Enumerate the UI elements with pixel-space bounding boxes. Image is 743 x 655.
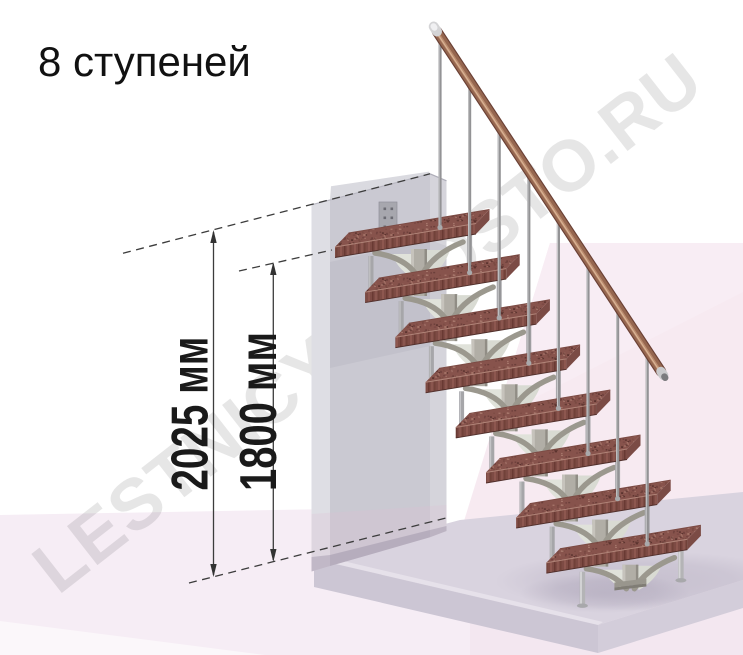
- svg-text:2025 мм: 2025 мм: [162, 337, 220, 491]
- svg-text:1800 мм: 1800 мм: [230, 332, 288, 491]
- svg-text:8 ступеней: 8 ступеней: [38, 38, 251, 85]
